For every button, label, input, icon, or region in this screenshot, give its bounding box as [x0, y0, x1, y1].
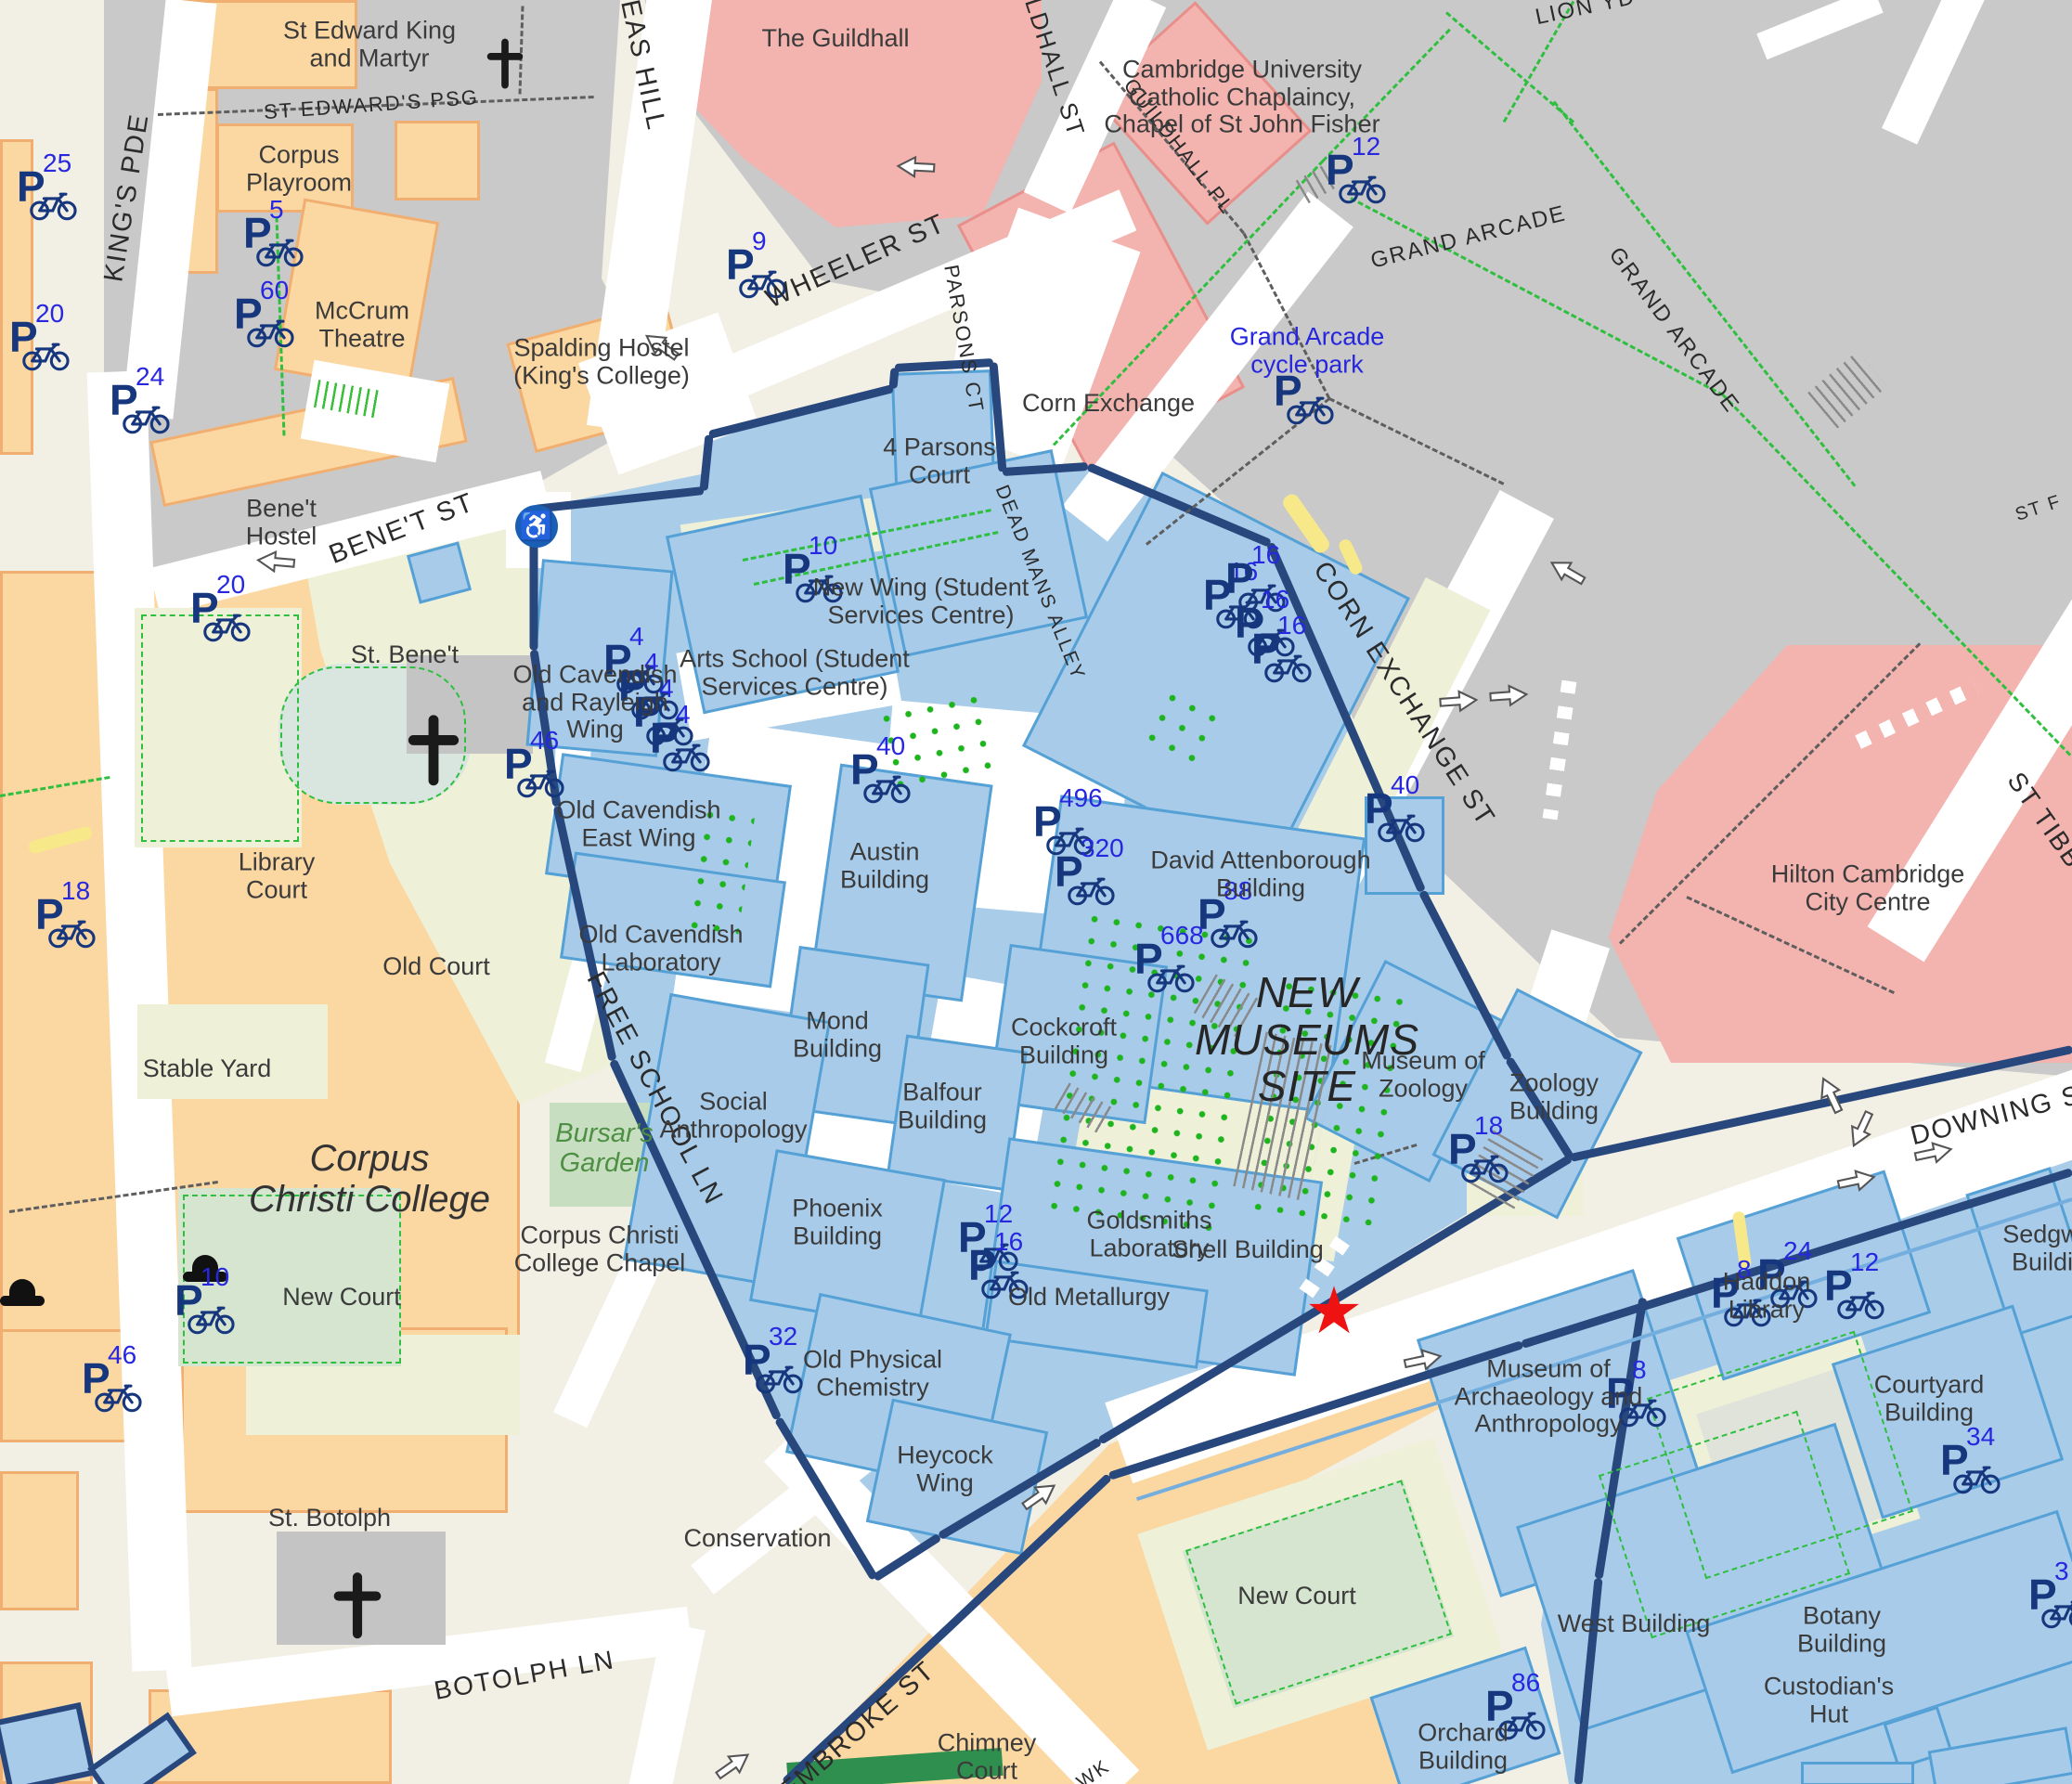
bike-parking-capacity: 18 [61, 878, 90, 904]
bike-parking-marker[interactable]: P18 [1448, 1128, 1532, 1193]
bike-parking-capacity: 4 [676, 702, 691, 728]
place-label: Social Anthropology [659, 1088, 807, 1143]
place-label: Museum of Archaeology and Anthropology [1455, 1355, 1643, 1438]
map-area-cream [137, 1004, 328, 1099]
place-label: St. Bene't [351, 641, 459, 669]
place-label: Chimney Court [938, 1729, 1037, 1784]
bike-parking-marker[interactable]: P5 [243, 212, 327, 277]
bike-parking-marker[interactable]: P20 [9, 316, 93, 381]
place-label: Old Cavendish and Rayleigh Wing [512, 661, 677, 743]
place-label: Custodian's Hut [1764, 1673, 1894, 1727]
bike-parking-marker[interactable]: P320 [1055, 850, 1138, 915]
map-area-orange [395, 121, 480, 200]
bike-parking-marker[interactable]: P25 [17, 165, 100, 230]
place-label: Stable Yard [143, 1055, 272, 1083]
place-label: Cockcroft Building [1011, 1014, 1117, 1068]
bike-parking-capacity: 40 [876, 733, 905, 759]
bike-parking-capacity: 20 [216, 572, 245, 598]
bike-parking-marker[interactable]: P40 [1365, 787, 1448, 852]
bike-parking-capacity: 34 [1966, 1424, 1995, 1450]
place-label: Bene't Hostel [246, 495, 317, 549]
bike-parking-marker[interactable]: P18 [35, 893, 119, 958]
bike-parking-capacity: 16 [1251, 542, 1280, 568]
place-label: Arts School (Student Services Centre) [680, 645, 910, 700]
place-label: Cambridge University Catholic Chaplaincy… [1104, 56, 1379, 138]
cambridge-new-museums-site-map[interactable]: ♿★P25 P5 P60 P20 P24 P9 P12 P P20 P10 P4 [0, 0, 2072, 1784]
place-label: St Edward King and Martyr [283, 17, 456, 71]
bike-parking-capacity: 320 [1081, 835, 1124, 861]
bike-parking-marker[interactable]: P12 [1326, 149, 1409, 213]
place-label: New Court [282, 1284, 401, 1312]
place-label: McCrum Theatre [315, 297, 409, 352]
selected-location-star-icon[interactable]: ★ [1305, 1278, 1364, 1343]
bike-parking-marker[interactable]: P20 [190, 587, 274, 652]
place-label: Courtyard Building [1874, 1371, 1985, 1426]
place-label: 4 Parsons Court [883, 433, 996, 488]
place-label: Spalding Hostel (King's College) [513, 334, 690, 389]
place-label: Old Court [382, 953, 490, 981]
bike-parking-capacity: 16 [1261, 587, 1289, 613]
place-label: Grand Arcade cycle park [1230, 323, 1385, 378]
place-label: Conservation [683, 1525, 831, 1553]
place-label: Old Metallurgy [1008, 1284, 1170, 1312]
bike-parking-marker[interactable]: P40 [850, 748, 934, 813]
bike-parking-marker[interactable]: P12 [1824, 1264, 1908, 1329]
place-label: Old Physical Chemistry [803, 1346, 942, 1401]
bike-parking-capacity: 24 [1783, 1238, 1812, 1264]
map-area-orange [0, 1471, 79, 1610]
bike-parking-capacity: 24 [136, 364, 164, 390]
bike-parking-capacity: 10 [201, 1264, 229, 1290]
place-label: Mond Building [793, 1007, 882, 1062]
bike-parking-capacity: 3 [2054, 1558, 2069, 1584]
bike-parking-capacity: 4 [629, 624, 644, 650]
bike-parking-capacity: 32 [769, 1324, 797, 1350]
bike-parking-capacity: 10 [809, 533, 837, 559]
place-label: Shell Building [1172, 1236, 1324, 1264]
bike-parking-marker[interactable]: P16 [1251, 627, 1335, 692]
bike-parking-capacity: 668 [1160, 923, 1204, 949]
bike-parking-marker[interactable]: P46 [82, 1357, 165, 1422]
hat-brim [0, 1296, 45, 1306]
place-label: Orchard Building [1418, 1719, 1509, 1774]
bike-parking-capacity: 5 [269, 197, 284, 223]
place-label: Old Cavendish Laboratory [578, 921, 743, 976]
place-label: Austin Building [840, 838, 929, 893]
place-label: Botany Building [1797, 1602, 1886, 1657]
place-label: Corpus Christi College [249, 1138, 490, 1220]
place-label: New Court [1237, 1583, 1356, 1610]
place-label: Corn Exchange [1022, 390, 1195, 418]
bike-parking-marker[interactable]: P60 [234, 292, 317, 357]
bike-parking-marker[interactable]: P3 [2028, 1573, 2072, 1638]
bike-parking-capacity: 16 [1277, 613, 1306, 639]
bike-parking-capacity: 16 [994, 1229, 1023, 1255]
place-label: Corpus Christi College Chapel [514, 1222, 686, 1276]
place-label: Balfour Building [898, 1079, 987, 1133]
place-label: Bursar's Garden [555, 1119, 653, 1179]
hat-dome [9, 1279, 35, 1298]
bike-parking-marker[interactable]: P24 [110, 379, 193, 444]
bike-parking-capacity: 12 [984, 1201, 1013, 1227]
place-label: Heycock Wing [897, 1441, 993, 1496]
bike-parking-marker[interactable]: P10 [175, 1279, 258, 1344]
place-label: West Building [1558, 1610, 1711, 1638]
place-label: Library Court [239, 848, 316, 903]
place-label: Hilton Cambridge City Centre [1771, 860, 1965, 915]
place-label: Phoenix Building [792, 1195, 883, 1249]
place-label: Corpus Playroom [246, 141, 352, 196]
bike-parking-capacity: 86 [1511, 1670, 1540, 1696]
place-label: Haddon Library [1723, 1268, 1811, 1323]
bike-parking-marker[interactable]: P [1274, 369, 1357, 434]
place-label: St. Botolph [268, 1505, 391, 1532]
bike-parking-capacity: 9 [752, 228, 767, 254]
map-area-blue [1801, 1762, 1914, 1784]
bike-parking-capacity: 60 [260, 278, 289, 304]
bike-parking-capacity: 20 [35, 301, 64, 327]
bike-parking-capacity: 46 [108, 1342, 136, 1368]
bike-parking-capacity: 18 [1474, 1113, 1503, 1139]
bike-parking-capacity: 12 [1850, 1249, 1879, 1275]
bike-parking-capacity: 40 [1391, 772, 1419, 798]
place-label: Museum of Zoology [1361, 1047, 1485, 1102]
bike-parking-marker[interactable]: P34 [1940, 1439, 2024, 1504]
place-label: New Wing (Student Services Centre) [813, 574, 1030, 628]
bike-parking-capacity: 25 [43, 150, 71, 176]
place-label: David Attenborough Building [1150, 847, 1370, 901]
place-label: Old Cavendish East Wing [556, 796, 720, 851]
disabled-access-icon: ♿ [515, 505, 558, 548]
place-label: The Guildhall [761, 25, 909, 53]
bowler-hat-icon [0, 1279, 45, 1307]
place-label: Sedgwick Building [2002, 1221, 2072, 1275]
place-label: Zoology Building [1509, 1069, 1599, 1124]
bike-parking-capacity: 496 [1059, 785, 1103, 811]
